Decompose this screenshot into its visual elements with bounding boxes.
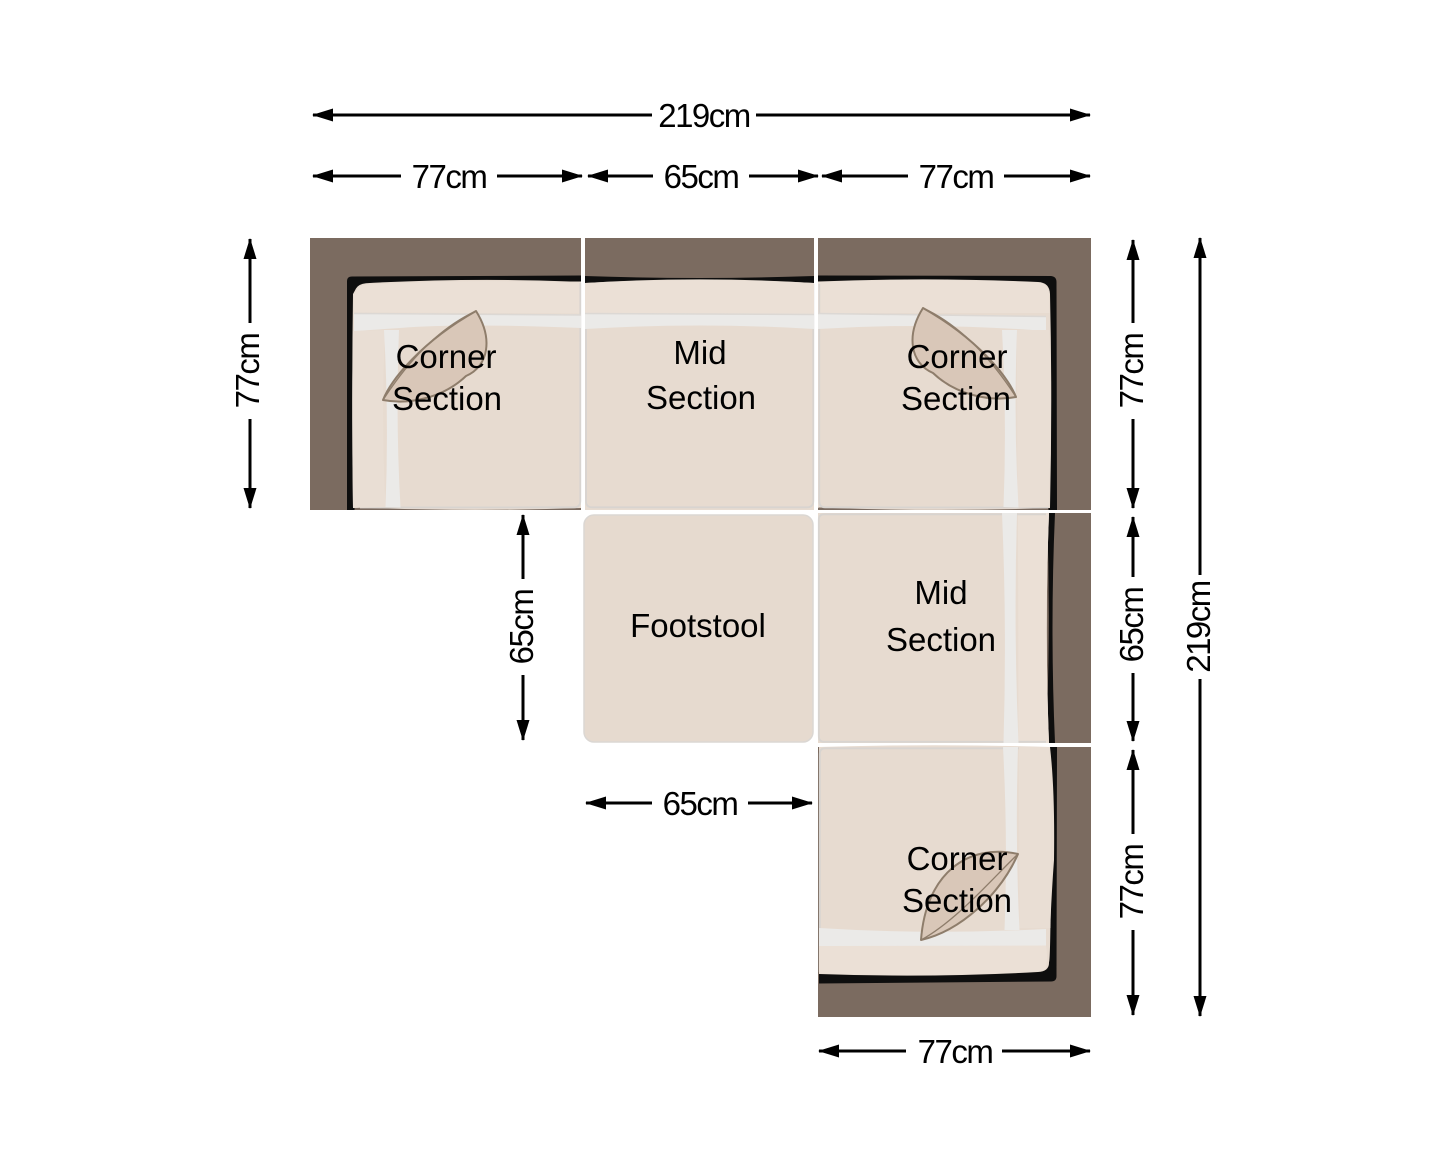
svg-text:Section: Section: [886, 621, 996, 658]
svg-text:77cm: 77cm: [919, 158, 994, 195]
svg-text:Section: Section: [646, 379, 756, 416]
svg-text:219cm: 219cm: [658, 97, 750, 134]
svg-text:Corner: Corner: [907, 840, 1008, 877]
svg-text:65cm: 65cm: [663, 785, 738, 822]
svg-text:Section: Section: [392, 380, 502, 417]
svg-text:77cm: 77cm: [229, 334, 266, 409]
svg-text:Mid: Mid: [673, 334, 726, 371]
svg-text:Corner: Corner: [396, 338, 497, 375]
svg-text:77cm: 77cm: [1113, 334, 1150, 409]
svg-text:77cm: 77cm: [918, 1033, 993, 1070]
svg-text:77cm: 77cm: [1113, 845, 1150, 920]
svg-text:Section: Section: [901, 380, 1011, 417]
svg-text:Mid: Mid: [914, 574, 967, 611]
svg-text:Footstool: Footstool: [630, 607, 766, 644]
svg-text:Section: Section: [902, 882, 1012, 919]
svg-text:77cm: 77cm: [412, 158, 487, 195]
svg-text:65cm: 65cm: [503, 590, 540, 665]
svg-text:65cm: 65cm: [664, 158, 739, 195]
svg-text:219cm: 219cm: [1180, 581, 1217, 673]
svg-text:Corner: Corner: [907, 338, 1008, 375]
svg-text:65cm: 65cm: [1113, 588, 1150, 663]
